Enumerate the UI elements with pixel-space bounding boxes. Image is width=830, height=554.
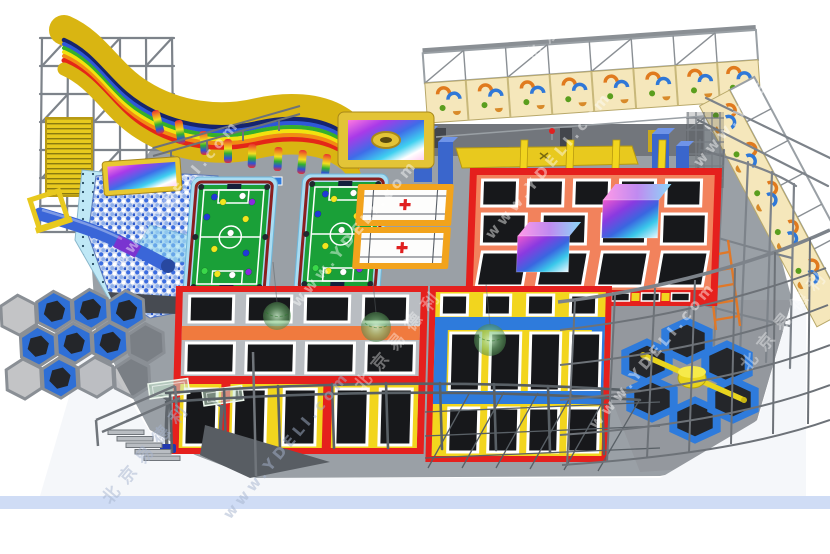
white-court-2	[352, 227, 451, 269]
tube-slide-exit	[161, 259, 175, 273]
wrecking-ball	[263, 302, 291, 330]
foreground-white	[0, 509, 830, 554]
wrecking-ball	[361, 312, 391, 342]
wrecking-ball	[474, 324, 506, 356]
snookball-court-1	[183, 177, 278, 297]
skirt-blue-strip	[0, 496, 830, 509]
render-canvas: www.YDELI.com www.YDELI.com www.YDELI.co…	[0, 0, 830, 554]
trampoline-park-render: www.YDELI.com www.YDELI.com www.YDELI.co…	[0, 0, 830, 554]
landing-airbag	[338, 112, 434, 168]
zipline-trolley	[549, 128, 555, 134]
honeycomb-climber	[0, 286, 166, 404]
